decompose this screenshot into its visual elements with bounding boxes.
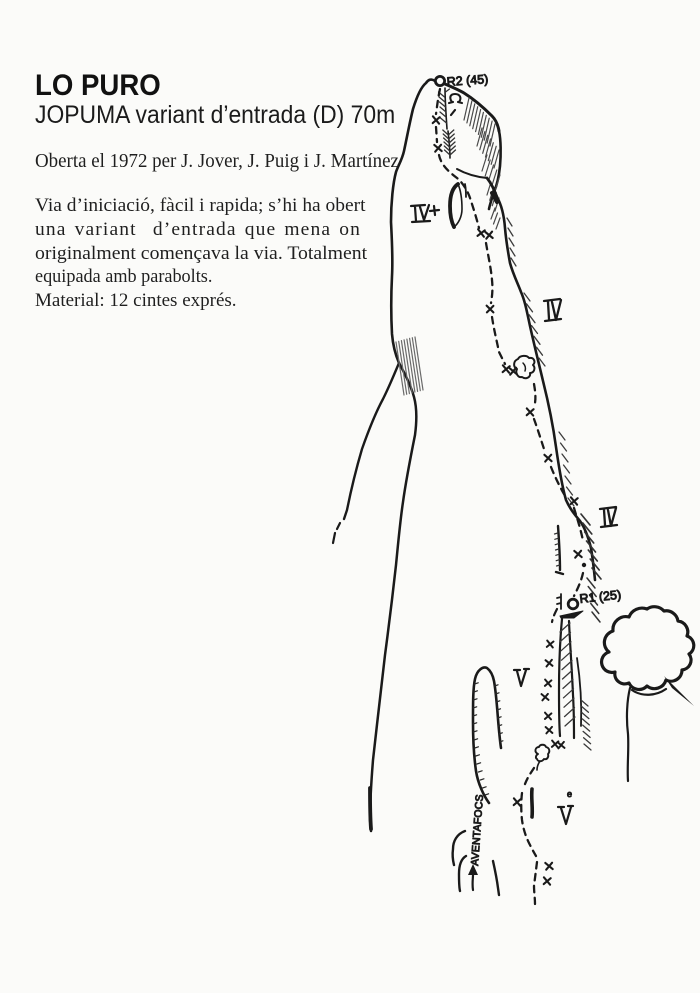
svg-text:e: e <box>567 789 572 799</box>
svg-text:R1 (25): R1 (25) <box>579 588 622 606</box>
svg-text:R2 (45): R2 (45) <box>446 72 489 89</box>
svg-text:AVENTAFOCS: AVENTAFOCS <box>469 794 486 866</box>
